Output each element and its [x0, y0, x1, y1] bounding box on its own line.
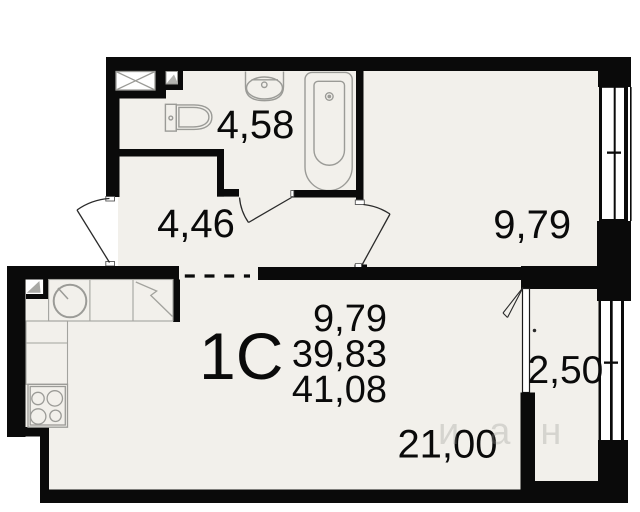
svg-text:41,08: 41,08 [292, 369, 387, 411]
svg-text:иан: иан [438, 411, 591, 453]
svg-text:4,46: 4,46 [157, 202, 235, 246]
svg-text:2,50: 2,50 [527, 349, 603, 392]
svg-text:4,58: 4,58 [217, 103, 295, 147]
svg-text:9,79: 9,79 [493, 203, 571, 247]
svg-text:1С: 1С [199, 319, 283, 393]
